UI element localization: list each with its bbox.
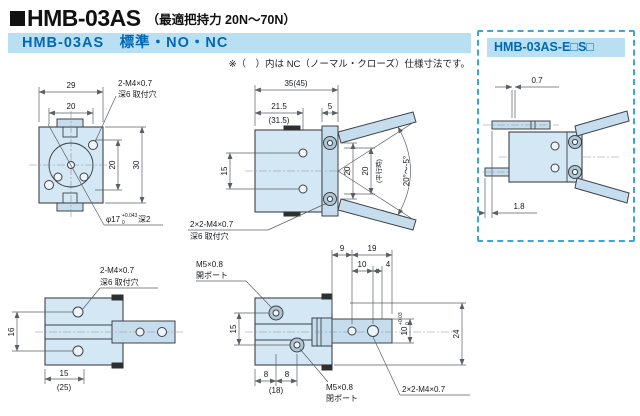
dim-front-width-outer: 29: [67, 81, 76, 90]
leader-side-mount-note: 深6 取付穴: [190, 231, 229, 241]
section-square-icon: [10, 11, 25, 26]
leader-open-port-thread: M5×0.8: [196, 260, 223, 269]
dim-port-b2: 8: [285, 370, 290, 379]
side-view-open: 35(45) 21.5 (31.5) 5 15 20: [188, 79, 416, 241]
dim-port-height-total: 24: [452, 329, 461, 338]
variant-drawing: 0.7 1.8: [479, 60, 633, 240]
dim-top-hole-pitch: 16: [7, 327, 16, 336]
dim-front-height-inner: 20: [108, 160, 117, 169]
leader-boss-depth: 深2: [138, 215, 151, 224]
dim-port-b1: 8: [264, 370, 269, 379]
dim-slot-tol-low: 0: [405, 322, 411, 325]
dim-top-offset-nc: (25): [57, 383, 72, 392]
section-header: HMB-03AS 標準・NO・NC: [8, 33, 471, 53]
leader-open-port-label: 開ポート: [196, 271, 228, 280]
dimension-drawings: 29 20 20 30 2-M4×0.7 深6 取付穴: [0, 66, 476, 416]
top-view: 16 2-M4×0.7 深6 取付穴 15 (25): [7, 266, 185, 392]
grip-force-note: （最適把持力 20N～70N）: [147, 9, 296, 28]
variant-box: HMB-03AS-E□S□ 0.7: [477, 30, 635, 242]
port-view: 9 19 10 4 15 8 8 (18) 10 +0.03 0: [196, 244, 470, 403]
leader-port-mount-thread: 2×2-M4×0.7: [402, 385, 446, 394]
dim-front-width-inner: 20: [67, 102, 76, 111]
dim-top-offset: 15: [60, 369, 69, 378]
dim-opening-angle: 20°～-5°: [402, 156, 411, 186]
leader-side-mount-thread: 2×2-M4×0.7: [190, 220, 234, 229]
leader-close-port-thread: M5×0.8: [326, 383, 353, 392]
dim-side-gap-parallel: 20: [361, 166, 370, 175]
dim-side-width-body: 21.5: [271, 102, 287, 111]
leader-close-port-label: 閉ポート: [326, 394, 358, 403]
dim-side-hole-pitch: 15: [220, 166, 229, 175]
dim-port-d2: 19: [368, 244, 377, 253]
leader-boss-tol-upper: +0.043: [122, 213, 138, 219]
dim-side-width-flange: 5: [328, 102, 333, 111]
dim-port-d4: 4: [386, 260, 391, 269]
note-parallel: (平行時): [374, 159, 383, 183]
leader-top-mount-thread: 2-M4×0.7: [100, 266, 135, 275]
dim-side-gap-open: 20: [343, 166, 352, 175]
dim-slot: 10: [400, 326, 409, 335]
dim-port-d3: 10: [358, 260, 367, 269]
page-title-row: HMB-03AS （最適把持力 20N～70N）: [10, 5, 296, 32]
catalog-page: HMB-03AS （最適把持力 20N～70N） HMB-03AS 標準・NO・…: [0, 0, 640, 416]
dim-port-b-nc: (18): [269, 386, 284, 395]
variant-title: HMB-03AS-E□S□: [487, 38, 625, 57]
dim-port-pitch-v: 15: [229, 324, 238, 333]
leader-front-mount-thread: 2-M4×0.7: [118, 79, 153, 88]
dim-adjust-bottom: 1.8: [513, 202, 525, 211]
leader-boss-tol-lower: 0: [122, 220, 125, 226]
dim-side-width-total: 35(45): [284, 79, 307, 88]
leader-boss-diameter: φ17: [106, 215, 121, 224]
leader-front-mount-note: 深6 取付穴: [118, 89, 157, 99]
leader-top-mount-note: 深6 取付穴: [100, 277, 139, 287]
front-view: 29 20 20 30 2-M4×0.7 深6 取付穴: [29, 79, 163, 226]
dim-side-width-body-nc: (31.5): [269, 116, 290, 125]
dim-slot-tol-up: +0.03: [398, 312, 404, 325]
dim-port-d1: 9: [340, 244, 345, 253]
dim-adjust-top: 0.7: [531, 76, 543, 85]
dim-front-height-outer: 30: [132, 160, 141, 169]
page-title: HMB-03AS: [27, 5, 141, 32]
